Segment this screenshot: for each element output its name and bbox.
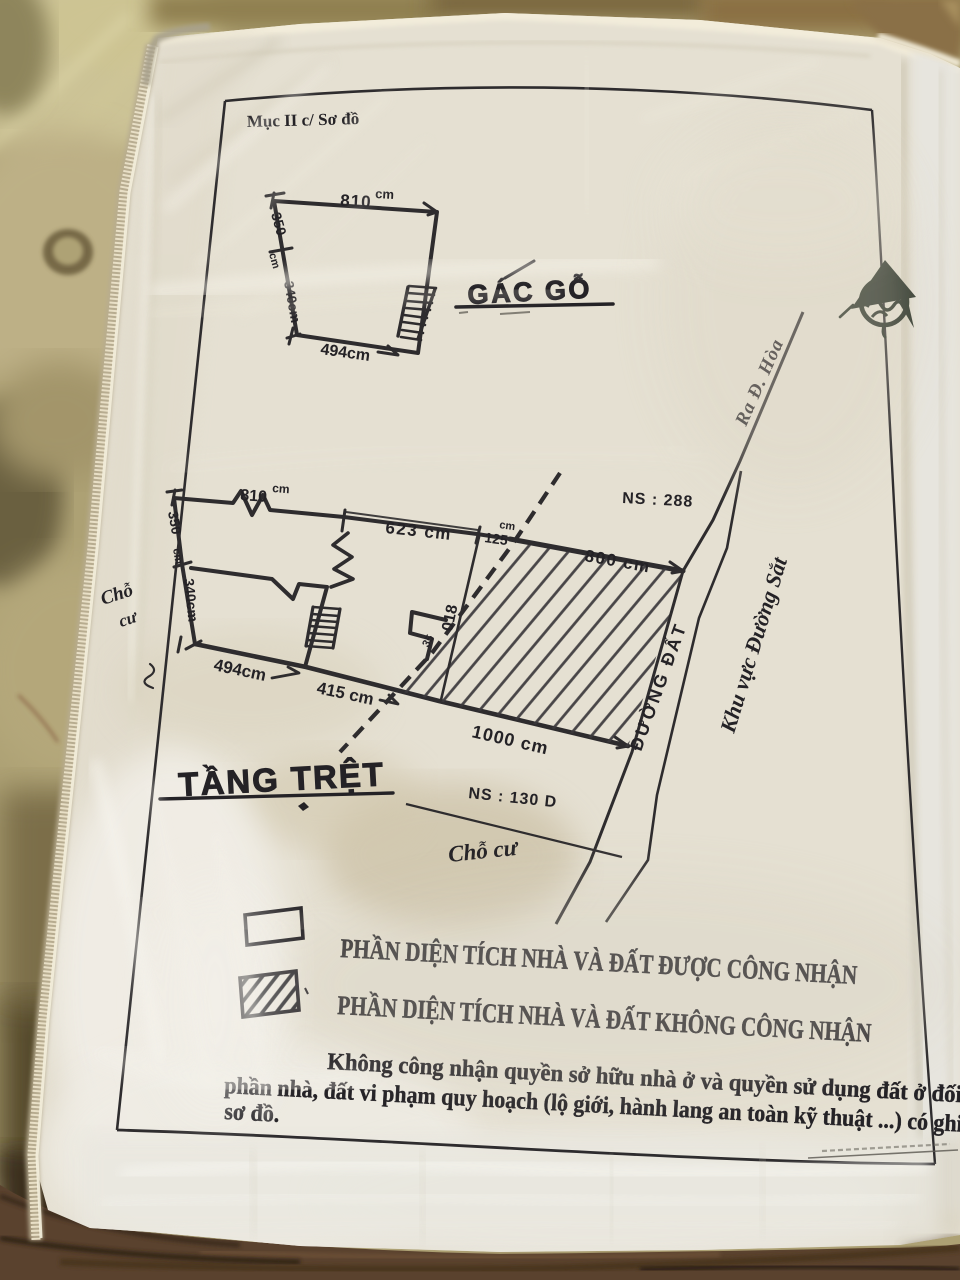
svg-text:125: 125 [484,529,510,548]
svg-text:810: 810 [240,487,268,506]
svg-text:cm: cm [272,481,290,496]
svg-text:cm: cm [499,519,517,533]
